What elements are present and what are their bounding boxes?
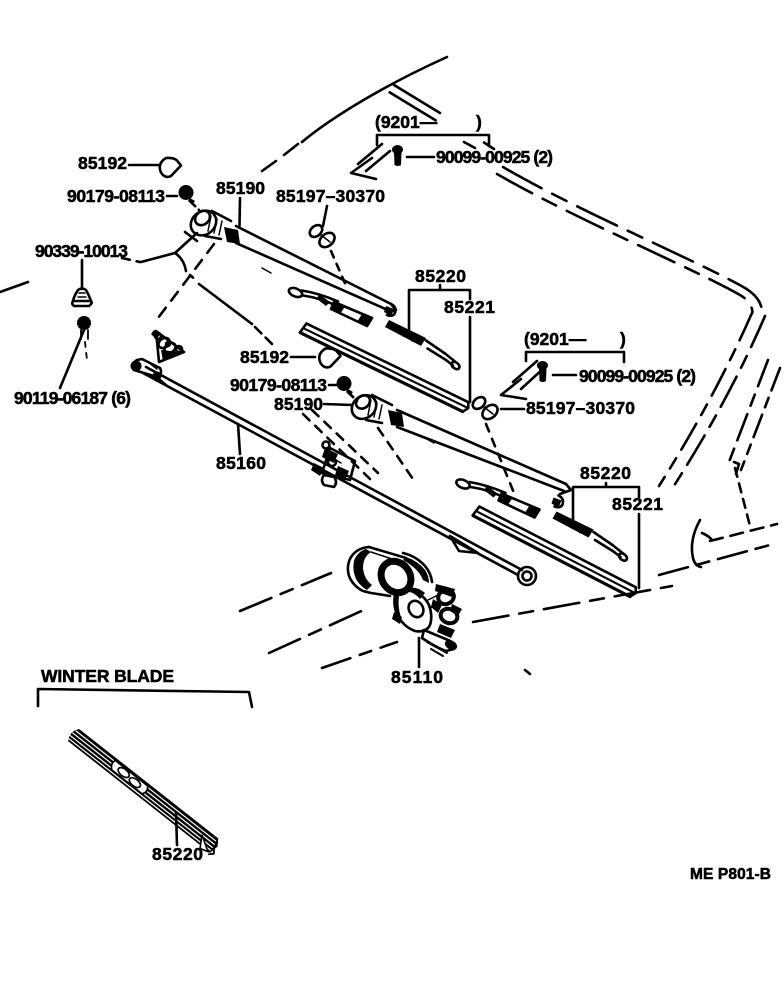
svg-text:90179-08113: 90179-08113 [67, 186, 165, 206]
svg-text:85110: 85110 [391, 667, 443, 687]
svg-text:): ) [620, 329, 626, 349]
svg-text:85197–30370: 85197–30370 [526, 398, 635, 418]
svg-text:85197–30370: 85197–30370 [276, 186, 385, 206]
svg-text:(9201—: (9201— [375, 112, 438, 132]
svg-text:85160: 85160 [216, 453, 266, 473]
svg-text:90339-10013: 90339-10013 [35, 241, 128, 261]
svg-text:90099-00925 (2): 90099-00925 (2) [436, 147, 553, 167]
svg-text:90179-08113: 90179-08113 [230, 375, 327, 395]
svg-text:WINTER BLADE: WINTER BLADE [41, 666, 174, 686]
svg-text:85192: 85192 [240, 347, 289, 367]
svg-text:85220: 85220 [580, 463, 631, 483]
svg-text:90099-00925 (2): 90099-00925 (2) [579, 366, 696, 386]
svg-text:85221: 85221 [612, 494, 663, 514]
svg-text:85220: 85220 [152, 844, 203, 864]
svg-text:85220: 85220 [415, 266, 466, 286]
svg-text:(9201—: (9201— [524, 329, 587, 349]
svg-text:ME P801-B: ME P801-B [690, 866, 771, 883]
svg-text:): ) [476, 112, 482, 132]
svg-text:85221: 85221 [444, 297, 495, 317]
svg-text:85192: 85192 [78, 153, 127, 173]
svg-text:90119-06187 (6): 90119-06187 (6) [14, 388, 131, 408]
svg-text:85190: 85190 [274, 394, 323, 414]
svg-text:85190: 85190 [216, 178, 265, 198]
